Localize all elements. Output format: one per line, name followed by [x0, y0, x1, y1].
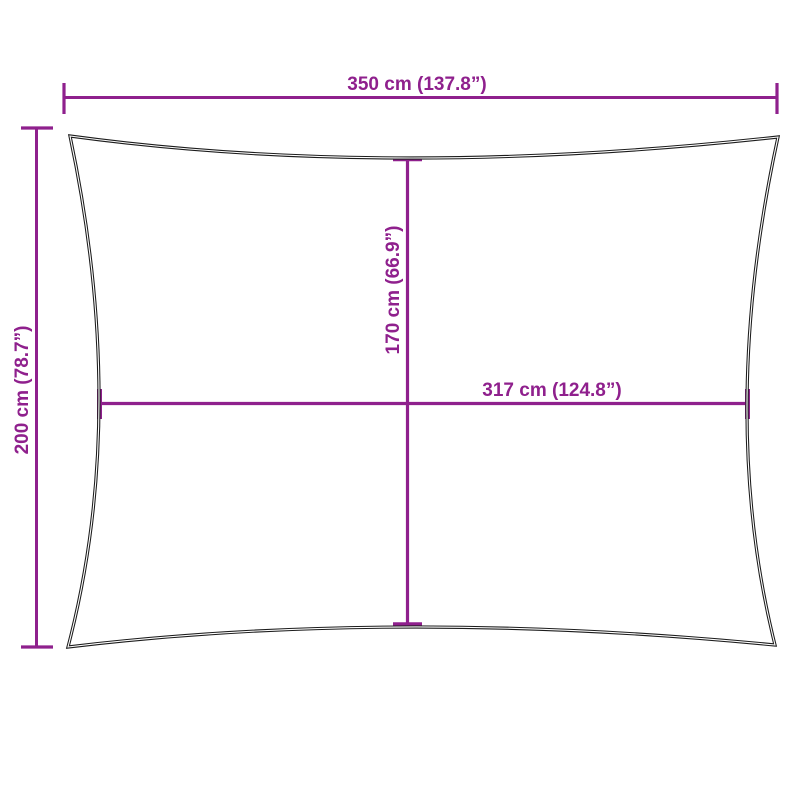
shade-sail-dimension-drawing: 350 cm (137.8”) 200 cm (78.7”) 170 cm (6… [0, 0, 800, 800]
sail-outline-stroke [68, 136, 778, 647]
dimension-center-height: 170 cm (66.9”) [383, 158, 422, 625]
dimension-left-height: 200 cm (78.7”) [12, 127, 53, 648]
shade-sail-outline [68, 136, 778, 647]
dimension-label-center-height: 170 cm (66.9”) [383, 226, 404, 355]
dimension-label-left-height: 200 cm (78.7”) [12, 326, 33, 455]
dimension-top-width: 350 cm (137.8”) [63, 74, 778, 114]
dimension-label-top-width: 350 cm (137.8”) [347, 74, 486, 95]
dimension-center-width: 317 cm (124.8”) [100, 380, 749, 419]
product-dimension-diagram: 350 cm (137.8”) 200 cm (78.7”) 170 cm (6… [0, 0, 800, 800]
sail-outline-highlight [68, 136, 778, 647]
dimension-label-center-width: 317 cm (124.8”) [482, 380, 621, 401]
